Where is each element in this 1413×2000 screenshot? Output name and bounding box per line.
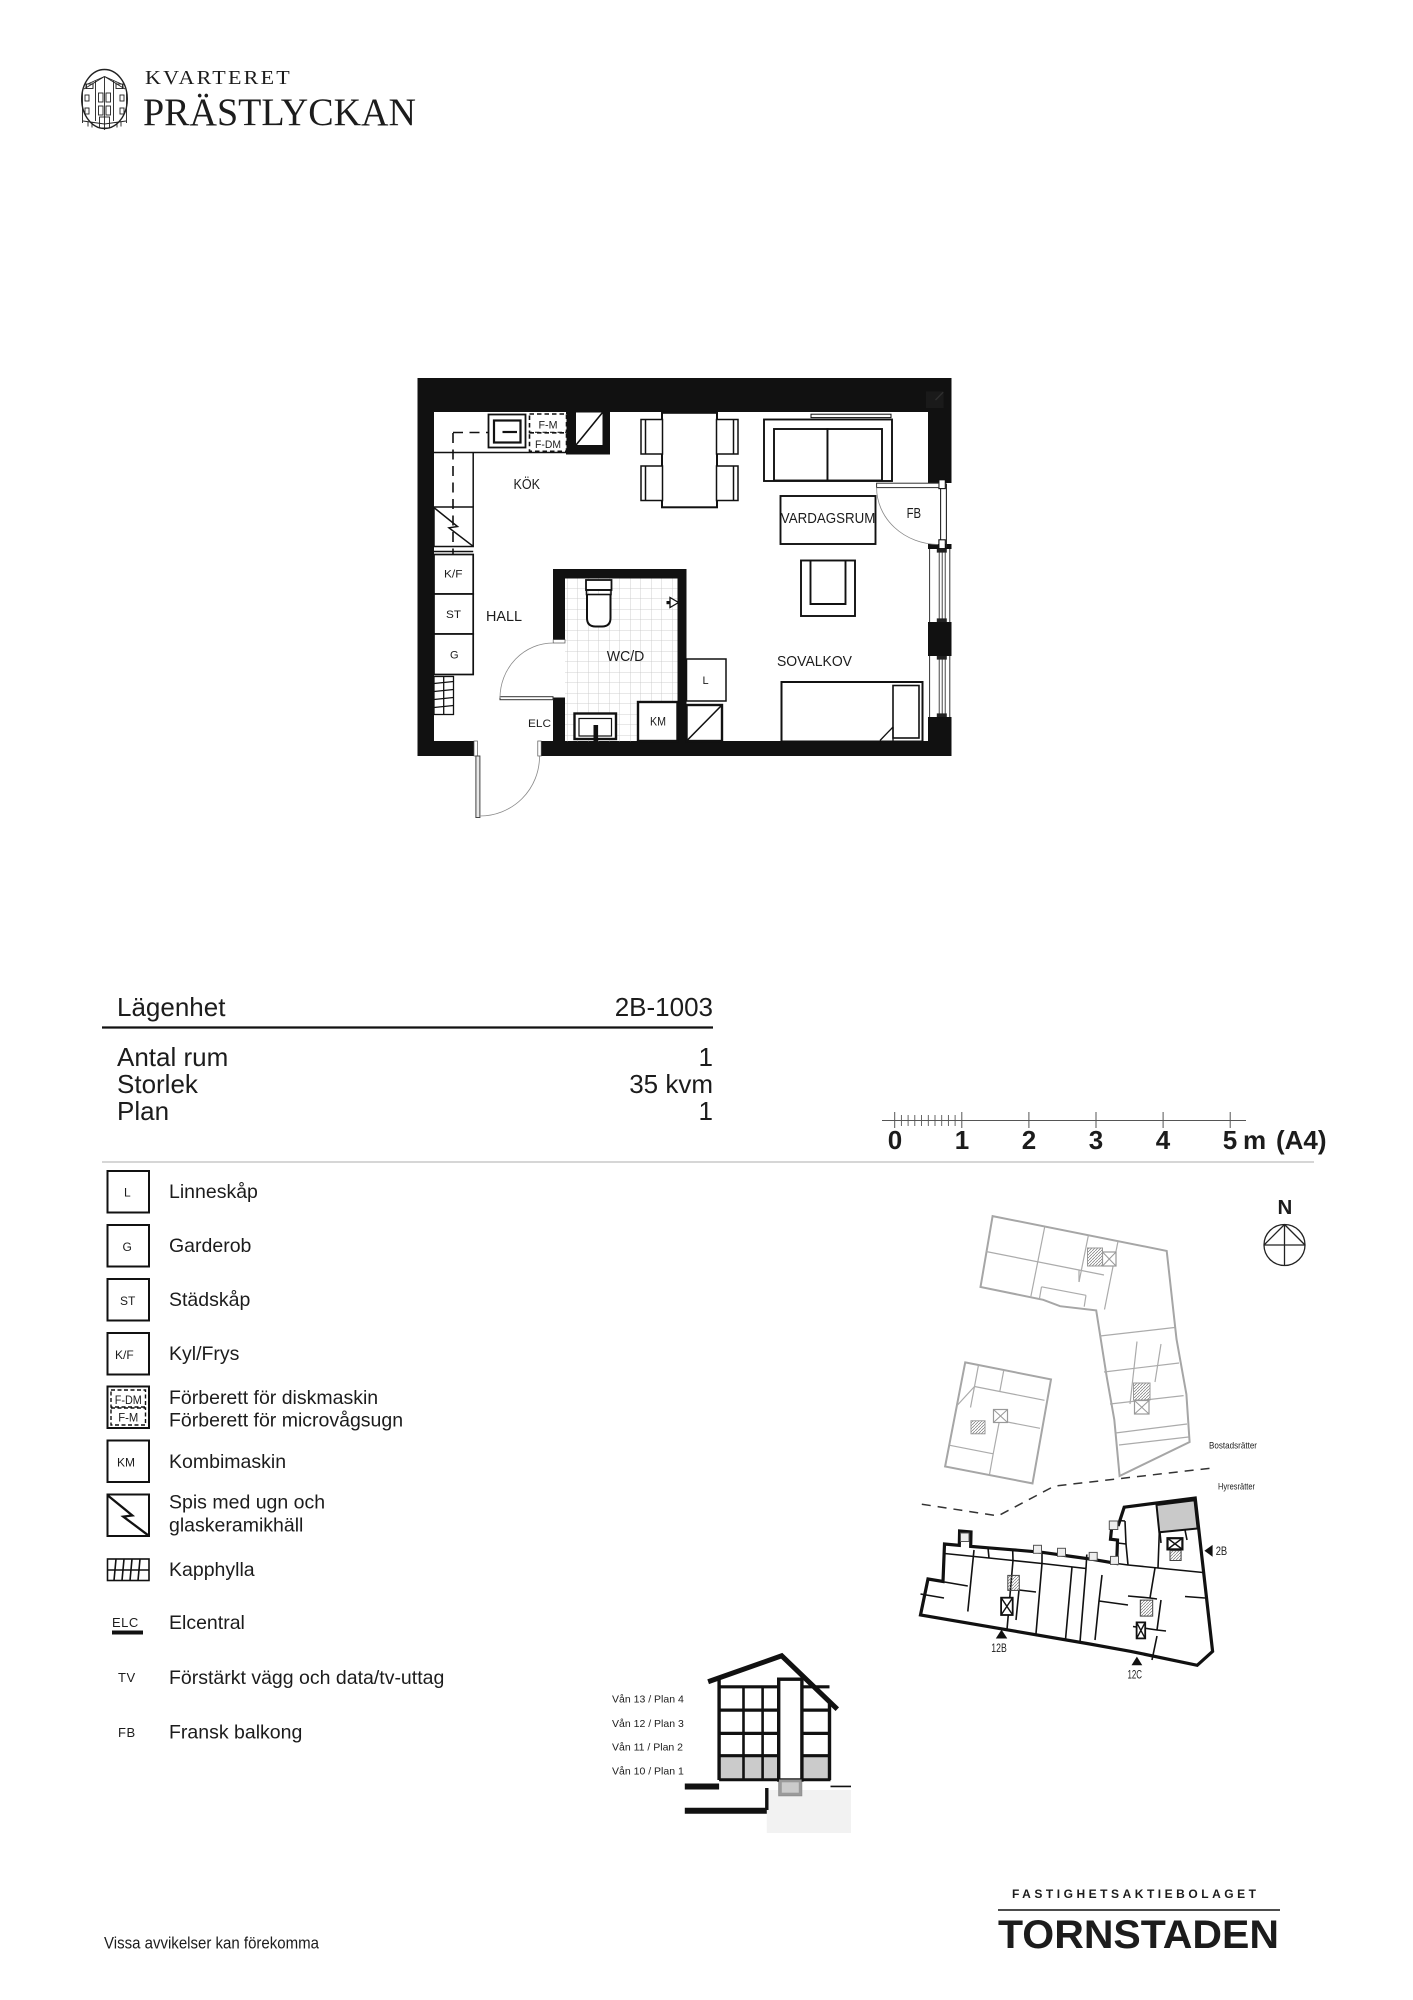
svg-text:Linneskåp: Linneskåp	[169, 1181, 258, 1203]
svg-text:5: 5	[1223, 1125, 1237, 1155]
svg-text:Kapphylla: Kapphylla	[169, 1559, 255, 1581]
svg-text:PRÄSTLYCKAN: PRÄSTLYCKAN	[143, 91, 416, 134]
svg-text:Hyresrätter: Hyresrätter	[1218, 1482, 1255, 1493]
svg-text:2B-1003: 2B-1003	[615, 992, 713, 1022]
svg-text:F-M: F-M	[539, 420, 558, 432]
svg-text:1: 1	[699, 1042, 713, 1072]
svg-text:(A4): (A4)	[1276, 1125, 1327, 1155]
svg-text:KM: KM	[650, 717, 666, 729]
svg-text:4: 4	[1156, 1125, 1171, 1155]
svg-text:Förberett för microvågsugn: Förberett för microvågsugn	[169, 1410, 403, 1432]
svg-text:ELC: ELC	[528, 718, 551, 730]
svg-text:N: N	[1278, 1196, 1293, 1219]
svg-text:F-DM: F-DM	[535, 439, 561, 451]
svg-text:VARDAGSRUM: VARDAGSRUM	[781, 511, 876, 527]
svg-text:KVARTERET: KVARTERET	[145, 68, 292, 89]
svg-text:1: 1	[699, 1096, 713, 1126]
svg-text:Plan: Plan	[117, 1096, 169, 1126]
svg-text:K/F: K/F	[115, 1348, 134, 1362]
svg-text:SOVALKOV: SOVALKOV	[777, 654, 852, 670]
svg-text:0: 0	[888, 1125, 902, 1155]
svg-text:ST: ST	[120, 1294, 136, 1308]
svg-text:35 kvm: 35 kvm	[629, 1069, 713, 1099]
svg-text:WC/D: WC/D	[607, 649, 645, 665]
svg-text:m: m	[1243, 1125, 1266, 1155]
svg-text:2: 2	[1022, 1125, 1036, 1155]
svg-text:K/F: K/F	[444, 569, 463, 581]
svg-text:Garderob: Garderob	[169, 1235, 252, 1257]
svg-text:Förberett för diskmaskin: Förberett för diskmaskin	[169, 1387, 378, 1409]
svg-text:TORNSTADEN: TORNSTADEN	[998, 1913, 1279, 1957]
svg-text:Vissa avvikelser kan förekomma: Vissa avvikelser kan förekomma	[104, 1934, 319, 1953]
svg-text:Elcentral: Elcentral	[169, 1612, 245, 1634]
svg-text:Lägenhet: Lägenhet	[117, 992, 226, 1022]
svg-text:KM: KM	[117, 1456, 135, 1470]
svg-text:FB: FB	[118, 1725, 136, 1740]
svg-text:FASTIGHETSAKTIEBOLAGET: FASTIGHETSAKTIEBOLAGET	[1012, 1887, 1257, 1901]
svg-text:Fransk balkong: Fransk balkong	[169, 1722, 302, 1744]
svg-text:glaskeramikhäll: glaskeramikhäll	[169, 1515, 303, 1537]
svg-text:Spis med ugn och: Spis med ugn och	[169, 1492, 325, 1514]
svg-text:Vån 10 / Plan 1: Vån 10 / Plan 1	[612, 1766, 684, 1778]
svg-text:Vån 12 / Plan 3: Vån 12 / Plan 3	[612, 1718, 684, 1730]
svg-text:TV: TV	[118, 1670, 136, 1685]
svg-text:Storlek: Storlek	[117, 1069, 199, 1099]
svg-text:Kombimaskin: Kombimaskin	[169, 1451, 286, 1473]
svg-text:Antal rum: Antal rum	[117, 1042, 228, 1072]
svg-text:Vån 11 / Plan 2: Vån 11 / Plan 2	[612, 1741, 683, 1753]
svg-text:FB: FB	[907, 506, 922, 522]
svg-text:ELC: ELC	[112, 1615, 139, 1630]
svg-text:Kyl/Frys: Kyl/Frys	[169, 1343, 240, 1365]
svg-text:12C: 12C	[1128, 1670, 1143, 1682]
svg-text:2B: 2B	[1216, 1546, 1228, 1558]
svg-text:3: 3	[1089, 1125, 1103, 1155]
svg-text:L: L	[703, 675, 709, 687]
svg-text:G: G	[450, 650, 459, 662]
svg-text:ST: ST	[446, 609, 461, 621]
svg-text:F-M: F-M	[118, 1413, 138, 1425]
svg-text:L: L	[124, 1186, 131, 1200]
svg-text:F-DM: F-DM	[115, 1395, 142, 1407]
svg-text:Städskåp: Städskåp	[169, 1289, 250, 1311]
svg-text:1: 1	[955, 1125, 969, 1155]
svg-text:KÖK: KÖK	[514, 475, 541, 493]
svg-text:12B: 12B	[991, 1643, 1007, 1655]
svg-text:G: G	[123, 1240, 132, 1254]
svg-text:Vån 13 / Plan 4: Vån 13 / Plan 4	[612, 1694, 684, 1706]
svg-text:Förstärkt vägg och data/tv-utt: Förstärkt vägg och data/tv-uttag	[169, 1667, 444, 1689]
svg-text:Bostadsrätter: Bostadsrätter	[1209, 1441, 1257, 1452]
svg-text:HALL: HALL	[486, 609, 522, 625]
